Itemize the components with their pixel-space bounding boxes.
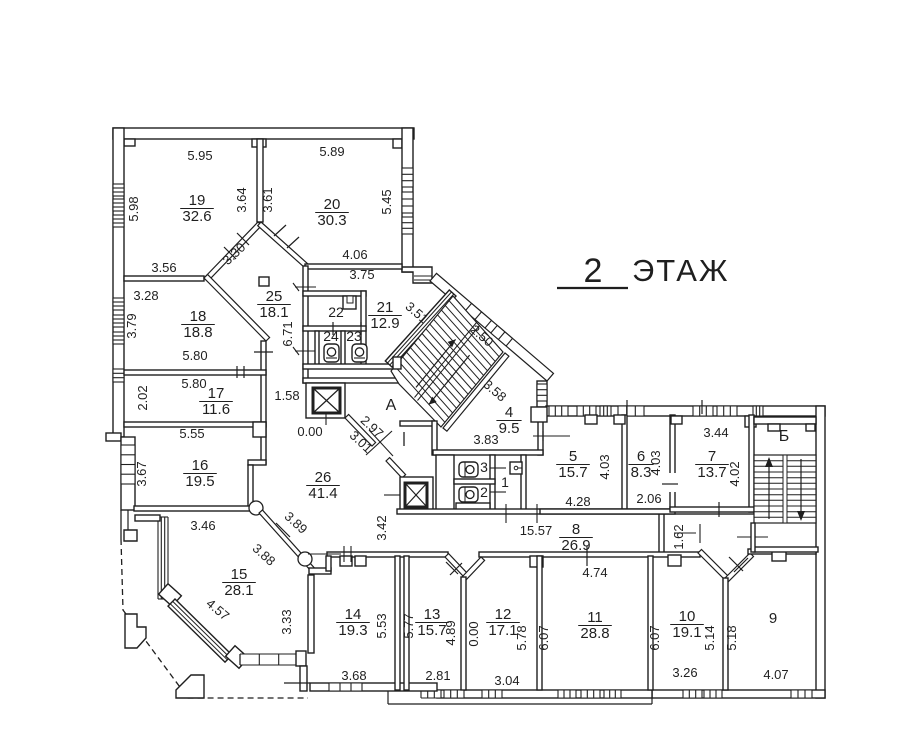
svg-text:18: 18: [190, 308, 207, 325]
svg-text:25: 25: [266, 288, 283, 305]
svg-text:3.79: 3.79: [124, 313, 139, 338]
svg-text:11.6: 11.6: [202, 401, 230, 418]
svg-text:3.46: 3.46: [190, 518, 215, 533]
svg-text:28.8: 28.8: [580, 625, 609, 642]
svg-text:3.04: 3.04: [494, 673, 519, 688]
svg-text:19.5: 19.5: [185, 473, 214, 490]
svg-text:4.07: 4.07: [763, 667, 788, 682]
svg-text:3.28: 3.28: [133, 288, 158, 303]
svg-text:3.83: 3.83: [473, 432, 498, 447]
svg-text:10: 10: [679, 608, 696, 625]
svg-text:2.81: 2.81: [425, 668, 450, 683]
svg-text:15.57: 15.57: [520, 523, 553, 538]
svg-text:4.02: 4.02: [727, 461, 742, 486]
svg-text:11: 11: [587, 609, 603, 626]
svg-text:5: 5: [569, 448, 577, 465]
svg-text:3.75: 3.75: [349, 267, 374, 282]
svg-text:5.89: 5.89: [319, 144, 344, 159]
svg-text:26.9: 26.9: [561, 537, 590, 554]
svg-text:4.74: 4.74: [582, 565, 607, 580]
svg-text:4.03: 4.03: [597, 454, 612, 479]
svg-text:5.80: 5.80: [182, 348, 207, 363]
svg-text:4.28: 4.28: [565, 494, 590, 509]
svg-text:13: 13: [424, 606, 441, 623]
svg-text:15.7: 15.7: [558, 464, 587, 481]
svg-text:A: A: [386, 397, 397, 414]
svg-text:5.78: 5.78: [514, 625, 529, 650]
svg-text:2: 2: [584, 252, 603, 290]
svg-text:21: 21: [377, 299, 394, 316]
svg-text:3.67: 3.67: [134, 461, 149, 486]
svg-text:19.1: 19.1: [672, 624, 701, 641]
svg-text:28.1: 28.1: [224, 582, 253, 599]
svg-text:5.77: 5.77: [401, 613, 416, 638]
svg-text:0.00: 0.00: [466, 621, 481, 646]
svg-text:19.3: 19.3: [338, 622, 367, 639]
svg-text:3: 3: [480, 459, 488, 475]
svg-text:1: 1: [501, 474, 509, 490]
svg-text:14: 14: [345, 606, 362, 623]
svg-text:5.53: 5.53: [374, 613, 389, 638]
svg-text:5.14: 5.14: [702, 625, 717, 650]
svg-text:9: 9: [769, 610, 777, 627]
svg-text:4.89: 4.89: [443, 620, 458, 645]
svg-text:6.07: 6.07: [536, 625, 551, 650]
svg-text:9.5: 9.5: [499, 420, 520, 437]
svg-text:5.98: 5.98: [126, 196, 141, 221]
svg-text:24: 24: [323, 328, 339, 344]
svg-text:2.02: 2.02: [135, 385, 150, 410]
svg-text:22: 22: [328, 304, 344, 320]
svg-text:ЭТАЖ: ЭТАЖ: [632, 253, 730, 288]
svg-text:3.68: 3.68: [341, 668, 366, 683]
svg-text:3.64: 3.64: [234, 187, 249, 212]
svg-text:5.95: 5.95: [187, 148, 212, 163]
svg-text:3.42: 3.42: [374, 515, 389, 540]
svg-text:13.7: 13.7: [697, 464, 726, 481]
svg-text:5.80: 5.80: [181, 376, 206, 391]
svg-text:26: 26: [315, 469, 332, 486]
svg-text:3.56: 3.56: [151, 260, 176, 275]
svg-text:3.26: 3.26: [672, 665, 697, 680]
svg-text:18.8: 18.8: [183, 324, 212, 341]
svg-text:15: 15: [231, 566, 248, 583]
svg-text:17: 17: [208, 385, 225, 402]
svg-text:3.61: 3.61: [260, 187, 275, 212]
svg-text:Б: Б: [779, 428, 790, 445]
svg-text:1.62: 1.62: [671, 524, 686, 549]
svg-text:5.55: 5.55: [179, 426, 204, 441]
svg-text:5.45: 5.45: [379, 189, 394, 214]
svg-text:4.03: 4.03: [648, 450, 663, 475]
svg-text:19: 19: [189, 192, 206, 209]
svg-text:12.9: 12.9: [370, 315, 399, 332]
svg-text:6.07: 6.07: [647, 625, 662, 650]
svg-text:5.18: 5.18: [724, 625, 739, 650]
svg-text:6: 6: [637, 448, 645, 465]
svg-text:23: 23: [346, 328, 362, 344]
svg-text:41.4: 41.4: [308, 485, 337, 502]
svg-text:1.58: 1.58: [274, 388, 299, 403]
svg-text:2.06: 2.06: [636, 491, 661, 506]
svg-text:3.44: 3.44: [703, 425, 728, 440]
svg-text:8: 8: [572, 521, 580, 538]
svg-text:2: 2: [480, 484, 488, 500]
svg-text:4.06: 4.06: [342, 247, 367, 262]
svg-text:30.3: 30.3: [317, 212, 346, 229]
svg-text:0.00: 0.00: [297, 424, 322, 439]
svg-text:3.33: 3.33: [279, 609, 294, 634]
svg-text:16: 16: [192, 457, 209, 474]
svg-text:12: 12: [495, 606, 512, 623]
svg-text:7: 7: [708, 448, 716, 465]
svg-text:4: 4: [505, 404, 513, 421]
svg-text:20: 20: [324, 196, 341, 213]
svg-text:32.6: 32.6: [182, 208, 211, 225]
svg-text:18.1: 18.1: [259, 304, 288, 321]
svg-text:6.71: 6.71: [280, 321, 295, 346]
